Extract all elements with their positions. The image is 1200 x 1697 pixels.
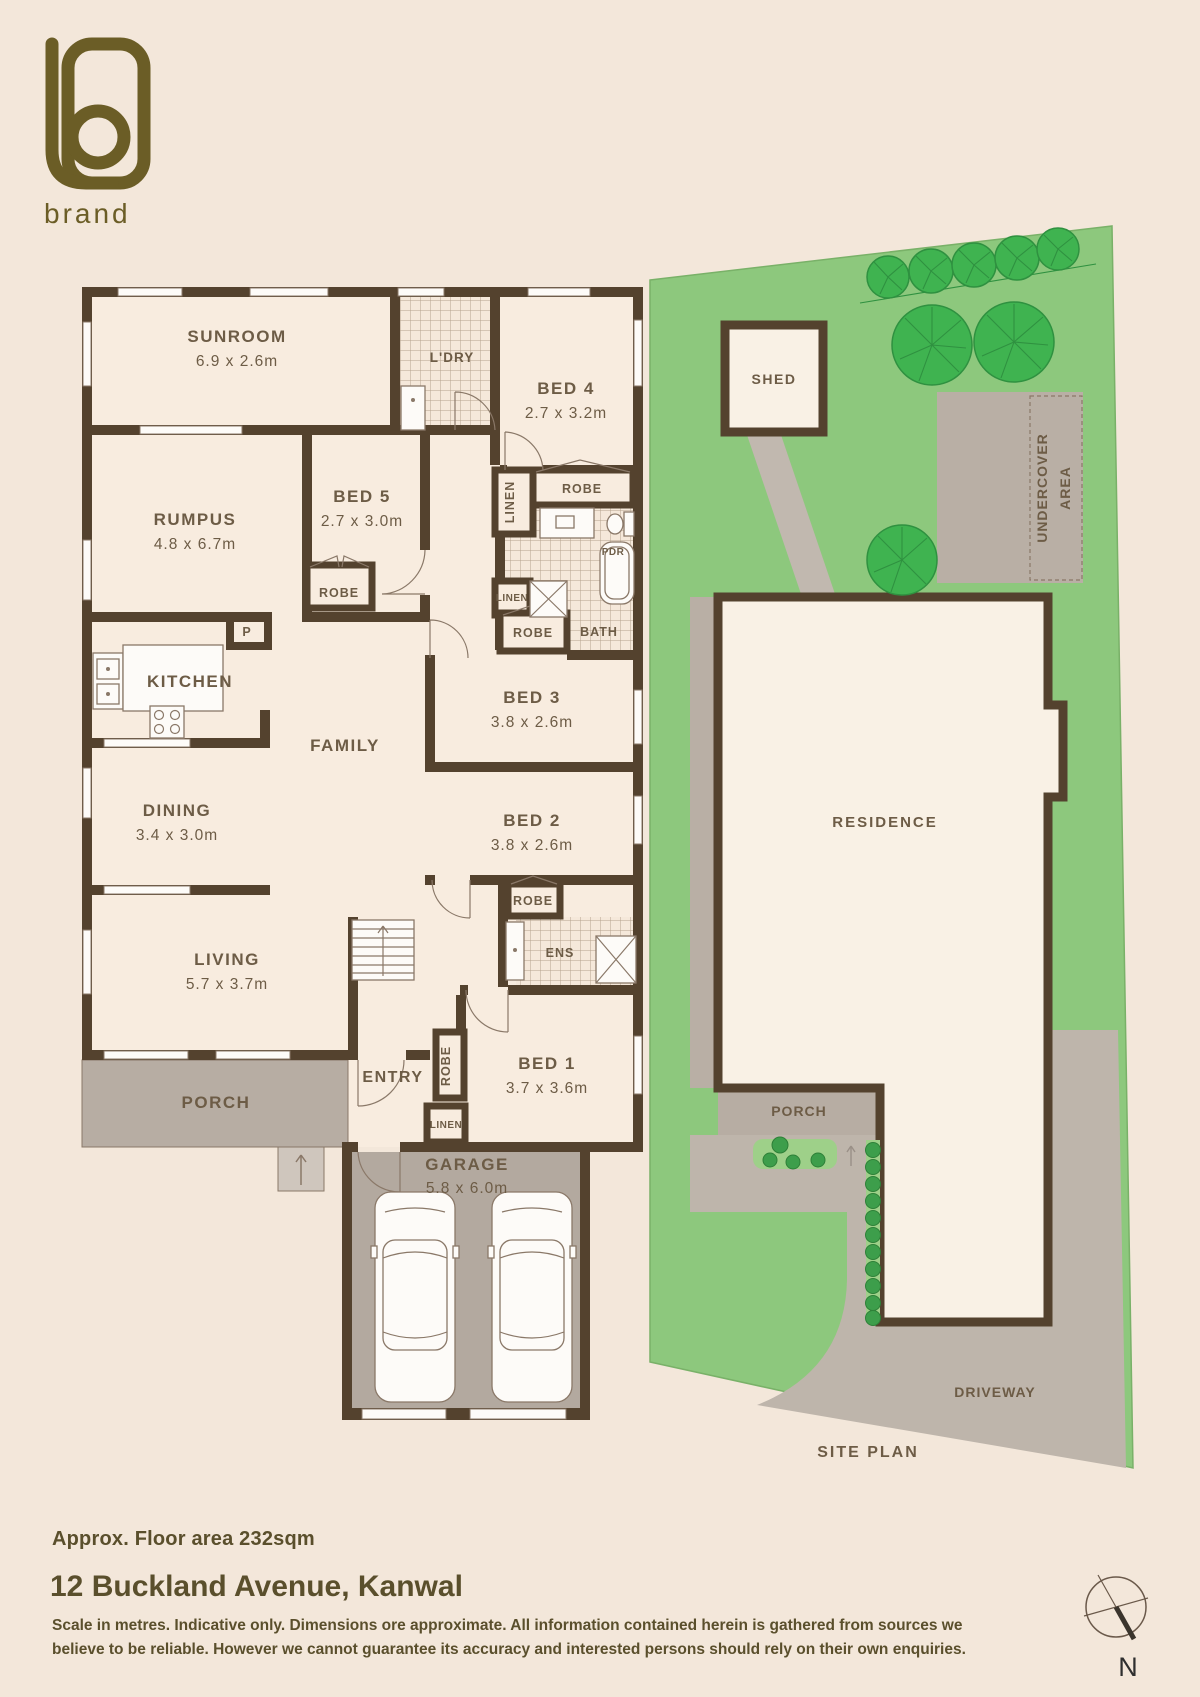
stove [150, 706, 184, 738]
plan-canvas: brand [0, 0, 1200, 1697]
bed5-label: BED 5 [333, 487, 391, 506]
address-title: 12 Buckland Avenue, Kanwal [50, 1570, 463, 1604]
brand-logo-text: brand [44, 198, 131, 229]
bed4-label: BED 4 [537, 379, 595, 398]
site-porch-label: PORCH [771, 1103, 827, 1119]
entry-linen-label: LINEN [430, 1120, 463, 1131]
floorplan-page: { "brand": { "name": "brand" }, "floorpl… [0, 0, 1200, 1697]
family-label: FAMILY [310, 736, 380, 755]
disclaimer-line-2: believe to be reliable. However we canno… [52, 1638, 966, 1662]
powder-label: PDR [602, 547, 625, 558]
living-label: LIVING [194, 950, 260, 969]
bath-linen-label: LINEN [496, 593, 529, 604]
dining-label: DINING [143, 801, 212, 820]
bed1-label: BED 1 [518, 1054, 576, 1073]
dining-dims: 3.4 x 3.0m [136, 827, 218, 844]
site-plan: SHED UNDERCOVER AREA RESIDENCE PORCH DRI… [650, 226, 1133, 1468]
disclaimer-text: Scale in metres. Indicative only. Dimens… [52, 1614, 966, 1662]
sunroom-label: SUNROOM [187, 327, 286, 346]
toilet [624, 512, 634, 536]
floor-area-text: Approx. Floor area 232sqm [52, 1528, 315, 1551]
bed3-robe-label: ROBE [513, 626, 553, 640]
entry-label: ENTRY [362, 1069, 423, 1086]
shed-label: SHED [752, 371, 797, 387]
sunroom-dims: 6.9 x 2.6m [196, 353, 278, 370]
living-dims: 5.7 x 3.7m [186, 976, 268, 993]
hall-linen-label: LINEN [503, 481, 517, 524]
rumpus-dims: 4.8 x 6.7m [154, 536, 236, 553]
porch-label: PORCH [182, 1093, 251, 1112]
bath-label: BATH [580, 625, 618, 639]
bed3-label: BED 3 [503, 688, 561, 707]
disclaimer-line-1: Scale in metres. Indicative only. Dimens… [52, 1614, 966, 1638]
bed2-robe-label: ROBE [513, 894, 553, 908]
undercover-label-1: UNDERCOVER [1034, 433, 1050, 543]
ensuite-label: ENS [546, 946, 575, 960]
bed4-robe-label: ROBE [562, 482, 602, 496]
bed2-label: BED 2 [503, 811, 561, 830]
car [371, 1192, 459, 1402]
bed5-dims: 2.7 x 3.0m [321, 513, 403, 530]
car [488, 1192, 576, 1402]
residence-label: RESIDENCE [832, 814, 938, 831]
driveway-label: DRIVEWAY [954, 1384, 1035, 1400]
laundry-label: L'DRY [430, 350, 474, 365]
undercover-label-2: AREA [1057, 466, 1073, 510]
bed3-dims: 3.8 x 2.6m [491, 714, 573, 731]
rumpus-label: RUMPUS [154, 510, 237, 529]
site-plan-caption: SITE PLAN [817, 1444, 919, 1461]
compass-north-label: N [1118, 1652, 1138, 1682]
bed5-robe-label: ROBE [319, 586, 359, 600]
hedge-bushes [866, 1143, 881, 1326]
bed2-dims: 3.8 x 2.6m [491, 837, 573, 854]
bed1-dims: 3.7 x 3.6m [506, 1080, 588, 1097]
pantry-label: P [242, 625, 251, 639]
garage-dims: 5.8 x 6.0m [426, 1180, 508, 1197]
bed1-robe-label: ROBE [439, 1046, 453, 1086]
kitchen-label: KITCHEN [147, 672, 233, 691]
bed4-dims: 2.7 x 3.2m [525, 405, 607, 422]
garage-label: GARAGE [425, 1155, 509, 1174]
laundry-tub [401, 386, 425, 430]
